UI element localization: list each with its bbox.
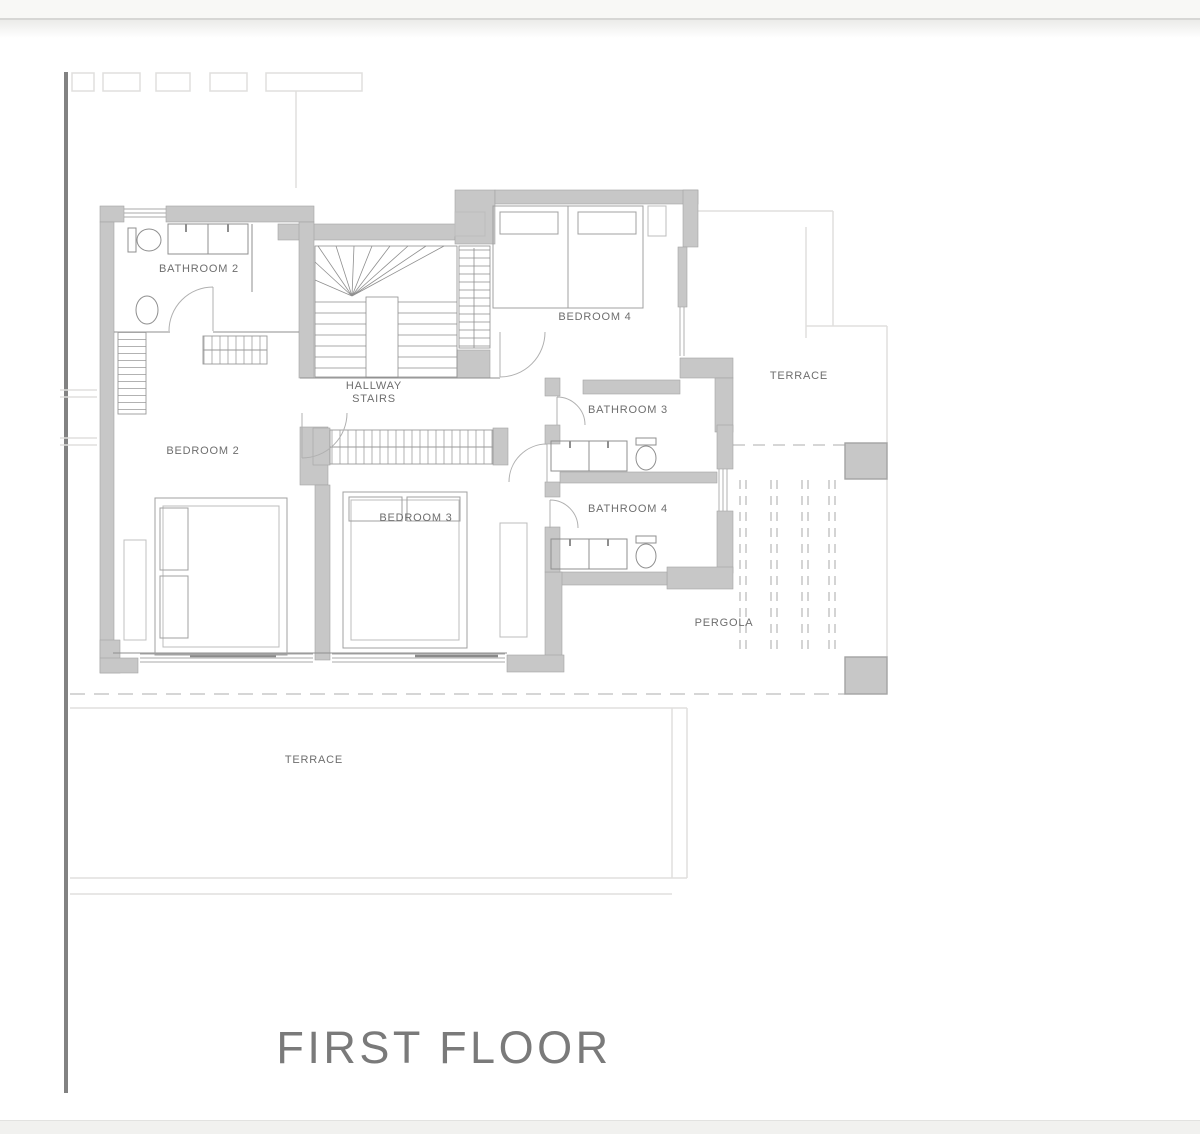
door-bathroom-3 (557, 397, 585, 425)
label-terrace-upper: TERRACE (770, 370, 828, 382)
fixtures-bathroom-3 (551, 438, 656, 471)
terrace-outline (70, 211, 887, 894)
label-pergola: PERGOLA (695, 617, 754, 629)
bottom-bar (0, 1120, 1200, 1134)
label-terrace-lower: TERRACE (285, 754, 343, 766)
bed-bedroom-2 (155, 498, 287, 655)
label-bathroom-3: BATHROOM 3 (588, 404, 668, 416)
door-bedroom-3 (509, 444, 547, 482)
label-bedroom-3: BEDROOM 3 (379, 512, 452, 524)
floor-plan-svg: BATHROOM 2 BEDROOM 2 HALLWAY STAIRS BEDR… (0, 0, 1200, 1134)
label-bathroom-4: BATHROOM 4 (588, 503, 668, 515)
label-bedroom-2: BEDROOM 2 (166, 445, 239, 457)
floor-title: FIRST FLOOR (276, 1022, 611, 1073)
door-bedroom-4 (500, 332, 545, 377)
screenshot-root: BATHROOM 2 BEDROOM 2 HALLWAY STAIRS BEDR… (0, 0, 1200, 1134)
door-bathroom-2 (169, 287, 213, 331)
desk-bedroom-3 (500, 523, 527, 637)
door-bathroom-4 (550, 500, 578, 528)
fixtures-bathroom-4 (551, 536, 656, 569)
label-bathroom-2: BATHROOM 2 (159, 263, 239, 275)
radiator-bedroom-2 (124, 540, 146, 640)
label-stairs: STAIRS (352, 393, 396, 405)
label-bedroom-4: BEDROOM 4 (558, 311, 631, 323)
label-hallway: HALLWAY (346, 380, 402, 392)
